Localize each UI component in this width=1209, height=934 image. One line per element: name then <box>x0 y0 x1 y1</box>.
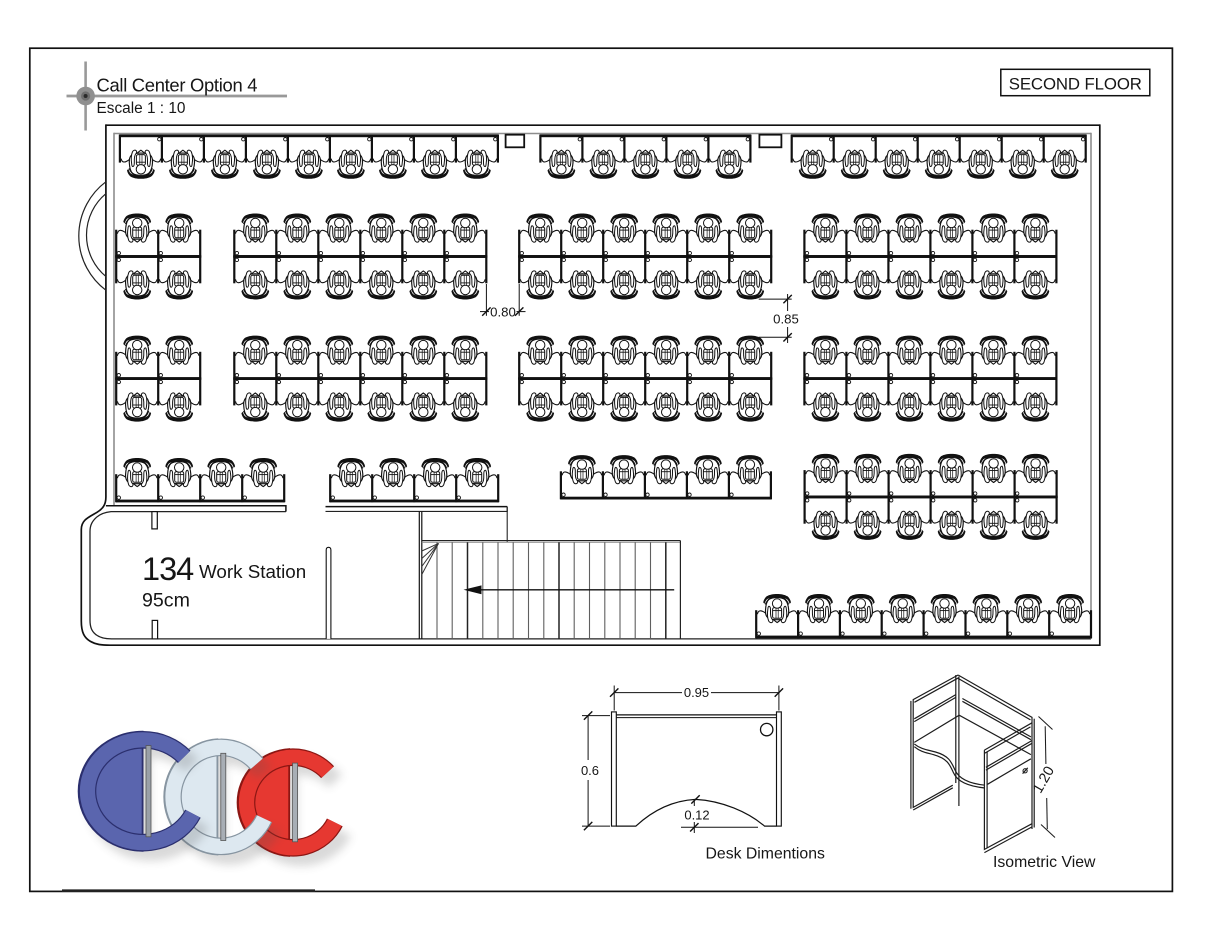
svg-text:Escale 1 : 10: Escale 1 : 10 <box>97 100 186 117</box>
svg-text:SECOND FLOOR: SECOND FLOOR <box>1009 74 1142 93</box>
svg-text:0.6: 0.6 <box>581 763 599 778</box>
svg-text:Desk Dimentions: Desk Dimentions <box>706 846 825 863</box>
svg-text:Isometric View: Isometric View <box>993 854 1096 871</box>
svg-text:0.85: 0.85 <box>773 312 799 327</box>
svg-text:Call Center Option 4: Call Center Option 4 <box>97 75 258 96</box>
svg-text:95cm: 95cm <box>142 590 190 612</box>
svg-text:0.95: 0.95 <box>684 685 709 700</box>
svg-text:0.80: 0.80 <box>490 304 516 319</box>
svg-text:0.12: 0.12 <box>684 808 709 823</box>
svg-text:Work Station: Work Station <box>199 561 306 582</box>
svg-text:134: 134 <box>142 551 194 587</box>
